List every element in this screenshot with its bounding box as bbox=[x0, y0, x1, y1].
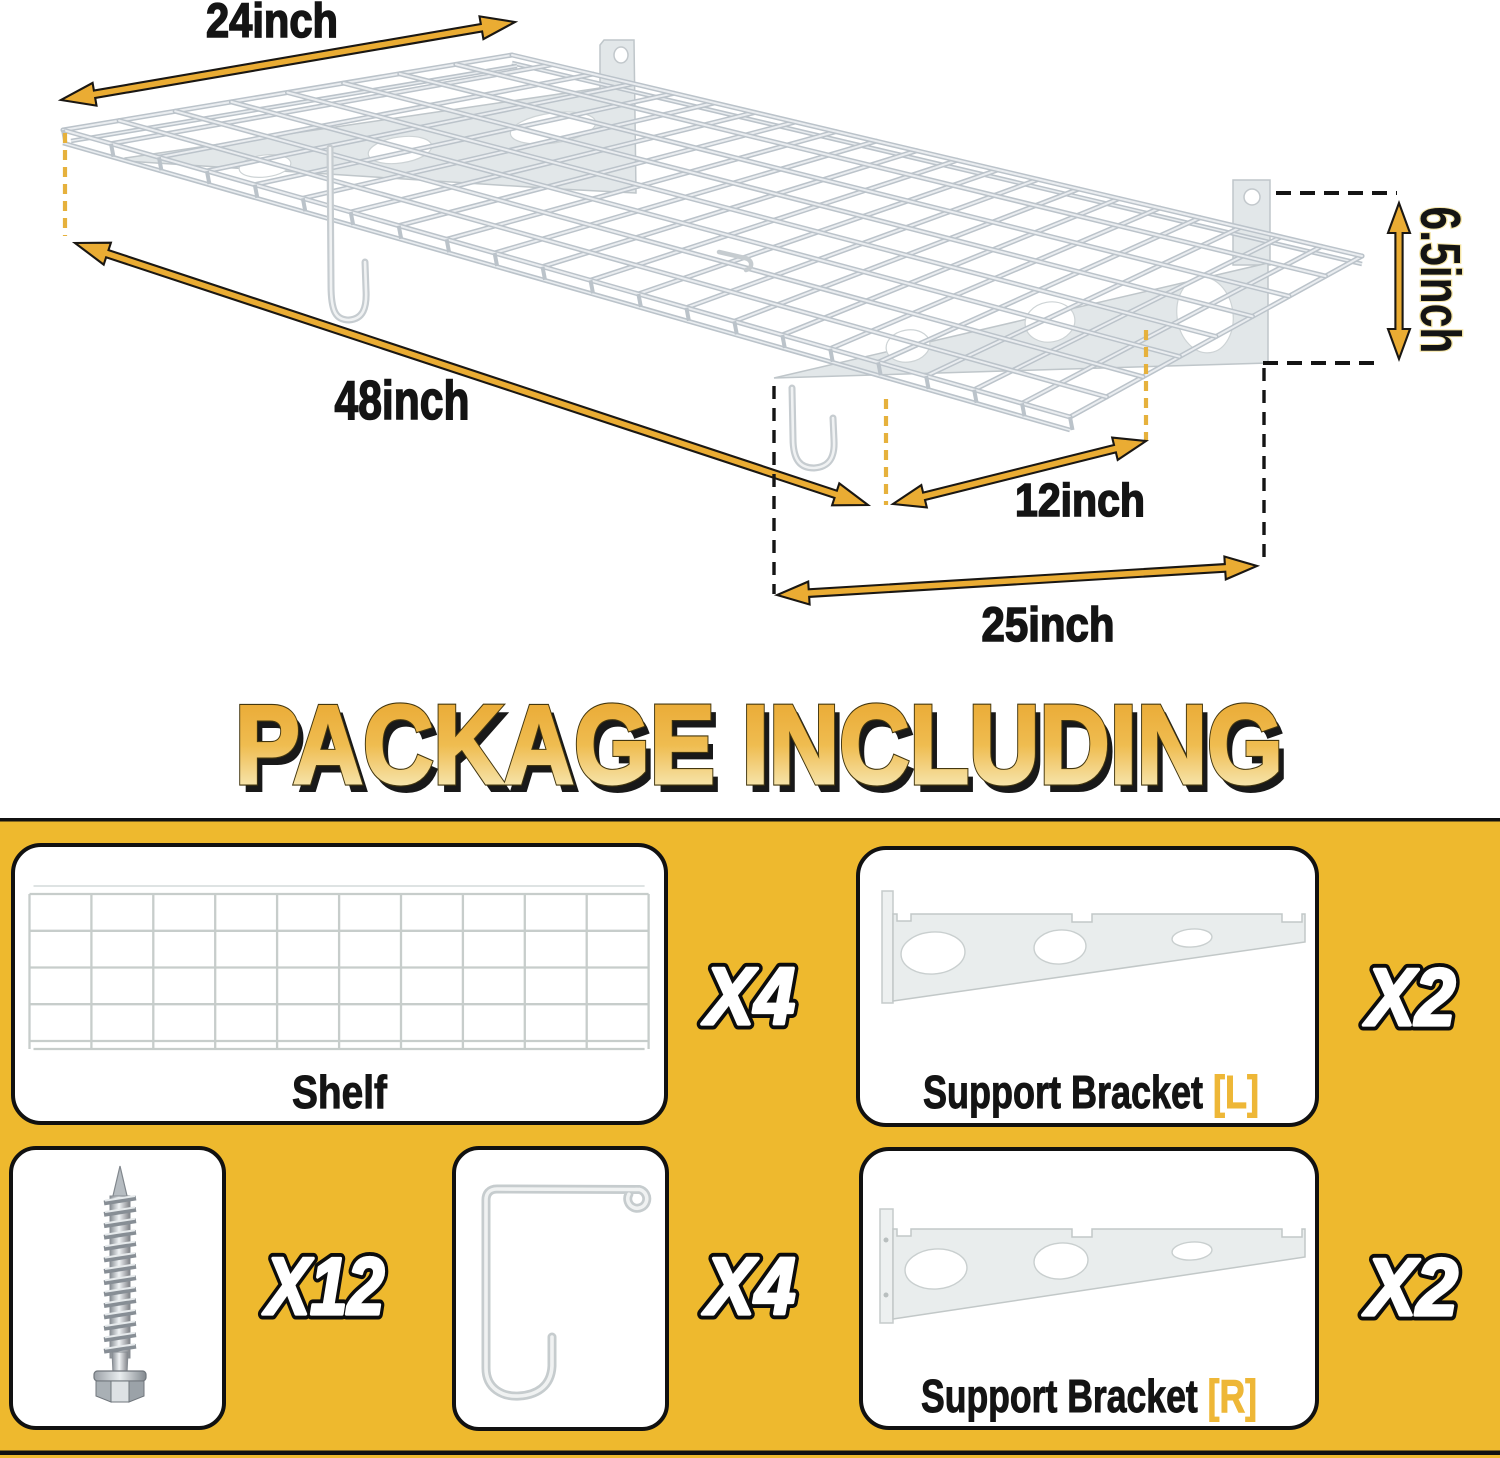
svg-text:12inch: 12inch bbox=[1015, 474, 1145, 526]
svg-text:X2: X2 bbox=[1363, 953, 1456, 1043]
svg-text:Support Bracket [R]: Support Bracket [R] bbox=[921, 1370, 1257, 1422]
svg-text:25inch: 25inch bbox=[982, 599, 1115, 652]
svg-text:Shelf: Shelf bbox=[292, 1066, 388, 1118]
svg-text:X4: X4 bbox=[702, 1242, 796, 1332]
svg-text:6.5inch: 6.5inch bbox=[1408, 207, 1472, 354]
svg-text:X12: X12 bbox=[262, 1242, 384, 1332]
svg-text:X2: X2 bbox=[1362, 1243, 1458, 1333]
svg-text:PACKAGE INCLUDING: PACKAGE INCLUDING bbox=[235, 683, 1283, 807]
svg-text:Support Bracket [L]: Support Bracket [L] bbox=[923, 1066, 1259, 1118]
svg-text:48inch: 48inch bbox=[335, 369, 470, 431]
svg-text:24inch: 24inch bbox=[206, 0, 338, 48]
svg-text:X4: X4 bbox=[701, 952, 795, 1042]
